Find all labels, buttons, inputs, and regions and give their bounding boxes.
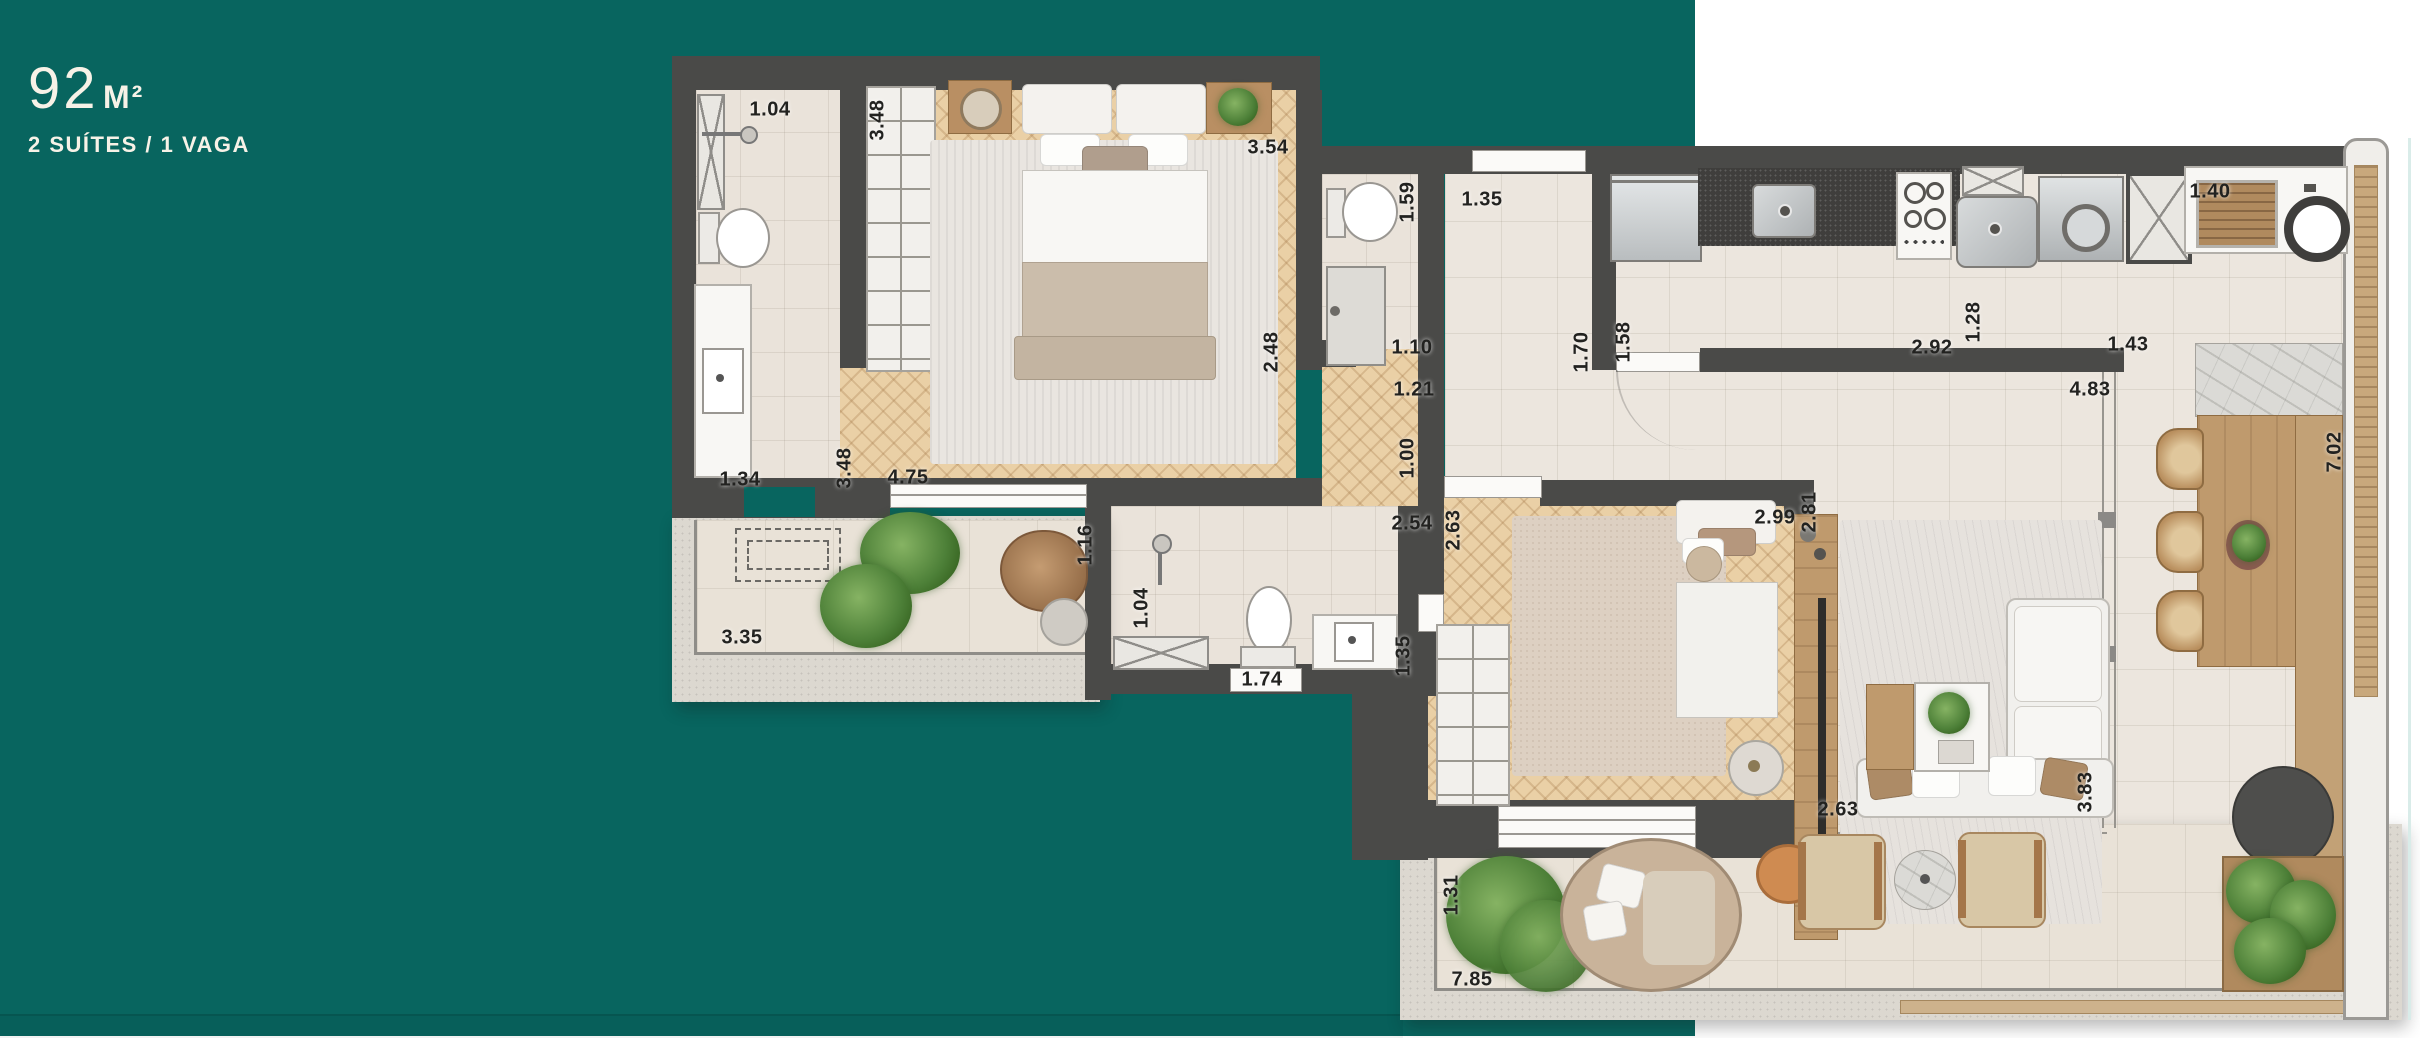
dimension-label: 3.54 [1248,137,1289,160]
dimension-label: 1.59 [1397,182,1420,223]
dimension-label: 3.35 [722,627,763,650]
dimension-label: 3.48 [867,100,890,141]
dimension-label: 2.63 [1443,510,1466,551]
dimension-label: 1.58 [1613,322,1636,363]
dimension-label: 1.74 [1242,669,1283,692]
dimension-label: 1.70 [1571,332,1594,373]
dimension-label: 3.83 [2075,772,2098,813]
dimension-label: 1.31 [1441,875,1464,916]
dimension-label: 2.81 [1799,492,1822,533]
dimension-label: 1.16 [1075,525,1098,566]
dimension-label: 3.48 [834,448,857,489]
dimension-label: 2.99 [1755,507,1796,530]
dimension-label: 1.04 [1131,588,1154,629]
dimension-label: 2.63 [1818,799,1859,822]
dimension-label: 1.35 [1462,189,1503,212]
dimension-label: 2.92 [1912,337,1953,360]
dimension-label: 1.21 [1394,379,1435,402]
dimension-label: 7.02 [2324,432,2347,473]
dimension-layer: 1.043.483.541.591.351.343.484.752.481.10… [0,0,2420,1036]
dimension-label: 1.10 [1392,337,1433,360]
dimension-label: 4.75 [888,467,929,490]
dimension-label: 1.35 [1393,636,1416,677]
dimension-label: 2.54 [1392,513,1433,536]
dimension-label: 4.83 [2070,379,2111,402]
dimension-label: 1.00 [1397,438,1420,479]
dimension-label: 2.48 [1261,332,1284,373]
dimension-label: 1.34 [720,469,761,492]
dimension-label: 7.85 [1452,969,1493,992]
dimension-label: 1.40 [2190,181,2231,204]
dimension-label: 1.04 [750,99,791,122]
dimension-label: 1.28 [1963,302,1986,343]
dimension-label: 1.43 [2108,334,2149,357]
floorplan-page: 92 M² 2 SUÍTES / 1 VAGA [0,0,2420,1036]
